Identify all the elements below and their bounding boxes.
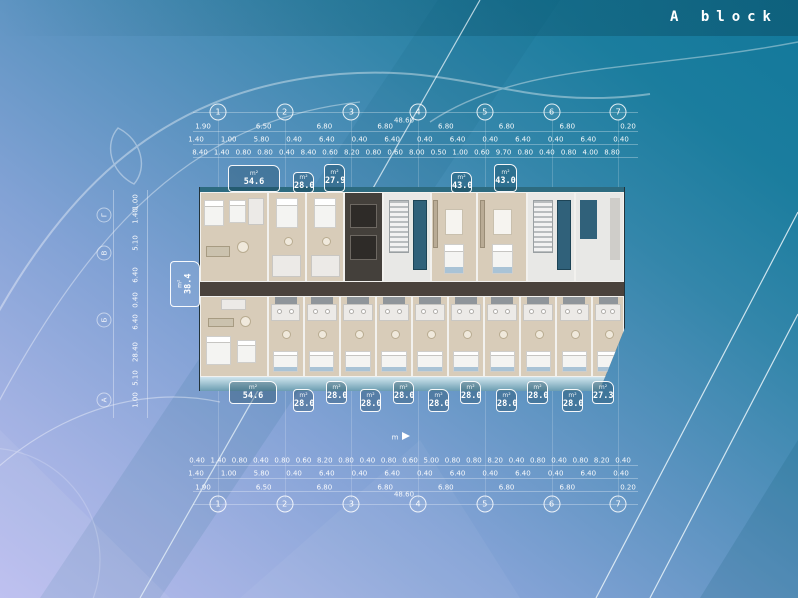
dimension-value: 0.80 xyxy=(573,458,589,465)
fixture-wc xyxy=(505,309,510,314)
dimension-value: 1.90 xyxy=(195,485,211,492)
area-unit-label: m² xyxy=(495,170,516,176)
dimension-chain-line xyxy=(193,157,638,158)
dimension-value: 6.40 xyxy=(515,471,531,478)
area-unit-label: m² xyxy=(394,385,413,391)
dimension-chain-line xyxy=(193,465,638,466)
bed-throw xyxy=(346,367,369,371)
furniture-table xyxy=(605,330,614,339)
area-badge[interactable]: m²43.0 xyxy=(494,164,517,192)
dimension-value: 6.40 xyxy=(581,471,597,478)
area-value: 28.0 xyxy=(327,392,346,401)
area-unit-label: m² xyxy=(177,280,183,288)
grid-row-letter: В xyxy=(97,246,112,261)
furniture-table xyxy=(427,330,436,339)
bed-pillow xyxy=(454,352,477,356)
dimension-value: 1.00 xyxy=(221,137,237,144)
dimension-value: 8.80 xyxy=(604,150,620,157)
bed-pillow xyxy=(563,352,586,356)
area-badge[interactable]: m²28.0 xyxy=(360,389,381,412)
dimension-value: 6.80 xyxy=(499,124,515,131)
dimension-value: 0.40 xyxy=(417,137,433,144)
dimension-value: 0.80 xyxy=(381,458,397,465)
dimension-value: 0.40 xyxy=(548,137,564,144)
left-dimension-value: 1.00 xyxy=(133,392,140,408)
furniture-bed xyxy=(276,198,298,228)
furniture-bed xyxy=(444,244,464,274)
dimension-value: 1.40 xyxy=(188,471,204,478)
furniture-table xyxy=(282,330,291,339)
area-value: 28.0 xyxy=(294,400,313,409)
fixture-wc xyxy=(433,309,438,314)
fixture-sink xyxy=(421,309,426,314)
furniture-bed xyxy=(453,351,478,372)
dimension-value: 0.40 xyxy=(615,458,631,465)
dimension-value: 0.40 xyxy=(613,137,629,144)
furniture-bed xyxy=(314,198,336,228)
furniture-sofa xyxy=(206,246,230,257)
bed-throw xyxy=(563,367,586,371)
unit-bottom-studio[interactable] xyxy=(484,296,520,377)
furniture-dining-table xyxy=(493,209,512,235)
left-dimension-value: 5.10 xyxy=(133,370,140,386)
furniture-table xyxy=(355,330,364,339)
dimension-value: 0.80 xyxy=(236,150,252,157)
area-unit-label: m² xyxy=(294,393,313,399)
area-value: 54.6 xyxy=(230,392,276,401)
dimension-value: 0.60 xyxy=(474,150,490,157)
dimension-value: 6.80 xyxy=(377,485,393,492)
corner-band xyxy=(700,440,798,598)
bed-pillow xyxy=(277,199,297,206)
area-value: 28.0 xyxy=(429,400,448,409)
furniture-entry xyxy=(491,297,513,304)
furniture-entry xyxy=(455,297,477,304)
unit-bottom-studio[interactable] xyxy=(340,296,376,377)
fixture-sink xyxy=(565,309,570,314)
grid-column-circle-top: 7 xyxy=(610,104,627,121)
furniture-shaft xyxy=(557,200,571,270)
dimension-value: 8.20 xyxy=(487,458,503,465)
furniture-bed xyxy=(492,244,513,274)
furniture-entry xyxy=(347,297,369,304)
dimension-value: 0.40 xyxy=(417,471,433,478)
furniture-table xyxy=(237,241,249,253)
unit-bottom-studio[interactable] xyxy=(304,296,340,377)
dimension-value: 5.80 xyxy=(254,137,270,144)
furniture-table xyxy=(284,237,293,246)
furniture-table xyxy=(535,330,544,339)
dimension-value: 1.90 xyxy=(195,124,211,131)
furniture-entry xyxy=(599,297,618,304)
dimension-value: 0.60 xyxy=(387,150,403,157)
unit-bottom-apartment-large-2[interactable] xyxy=(200,296,268,377)
fixture-wc xyxy=(397,309,402,314)
furniture-bathroom xyxy=(560,304,589,321)
furniture-wardrobe xyxy=(480,200,485,248)
grid-column-circle-bottom: 3 xyxy=(343,496,360,513)
dimension-value: 0.80 xyxy=(366,150,382,157)
bed-pillow xyxy=(315,199,335,206)
dimension-value: 6.40 xyxy=(384,471,400,478)
fixture-wc xyxy=(469,309,474,314)
bed-throw xyxy=(454,367,477,371)
unit-bottom-studio[interactable] xyxy=(520,296,556,377)
bed-pillow xyxy=(274,352,297,356)
bed-throw xyxy=(418,367,441,371)
area-value: 54.6 xyxy=(229,178,279,187)
furniture-elevator xyxy=(350,204,377,229)
area-unit-label: m² xyxy=(528,385,547,391)
grid-column-circle-top: 1 xyxy=(210,104,227,121)
dimension-value: 6.40 xyxy=(319,471,335,478)
unit-bottom-studio[interactable] xyxy=(556,296,592,377)
dimension-value: 0.80 xyxy=(232,458,248,465)
area-badge[interactable]: m²27.3 xyxy=(592,381,614,404)
area-unit-label: m² xyxy=(361,393,380,399)
bed-throw xyxy=(491,367,514,371)
furniture-entry xyxy=(383,297,405,304)
dimension-value: 6.50 xyxy=(256,124,272,131)
furniture-stair-flight xyxy=(533,200,553,253)
dimension-chain-line xyxy=(193,131,638,132)
overall-width-value: 48.60 xyxy=(394,118,414,125)
grid-column-circle-top: 6 xyxy=(543,104,560,121)
side-area-inner: m²38.4 xyxy=(177,274,193,294)
area-value: 43.0 xyxy=(452,182,471,191)
fixture-sink xyxy=(529,309,534,314)
bed-throw xyxy=(310,367,333,371)
fixture-wc xyxy=(361,309,366,314)
dimension-value: 6.80 xyxy=(377,124,393,131)
furniture-table xyxy=(240,316,251,327)
area-value: 28.0 xyxy=(563,400,582,409)
furniture-wall xyxy=(610,198,620,259)
area-value: 28.0 xyxy=(461,392,480,401)
bed-pillow xyxy=(445,245,463,252)
area-badge[interactable]: m²28.0 xyxy=(393,381,414,404)
block-title: A block xyxy=(670,9,778,25)
fixture-sink xyxy=(457,309,462,314)
dimension-value: 0.40 xyxy=(286,137,302,144)
dimension-value: 6.80 xyxy=(559,485,575,492)
area-badge[interactable]: m²28.0 xyxy=(293,172,314,193)
furniture-table xyxy=(499,330,508,339)
area-badge[interactable]: m²28.0 xyxy=(496,389,517,412)
area-badge[interactable]: m²28.0 xyxy=(293,389,314,412)
furniture-bathroom xyxy=(343,304,372,321)
left-dimension-value: 6.40 xyxy=(133,314,140,330)
dimension-value: 6.40 xyxy=(384,137,400,144)
bed-pillow xyxy=(382,352,405,356)
furniture-table xyxy=(322,237,331,246)
furniture-stair-flight xyxy=(389,200,409,253)
furniture-elevator xyxy=(350,235,377,260)
fixture-wc xyxy=(325,309,330,314)
unit-top-apartment-suite[interactable] xyxy=(477,192,527,282)
furniture-bed xyxy=(309,351,334,372)
dimension-value: 0.80 xyxy=(338,458,354,465)
plan-corridor xyxy=(200,282,624,296)
furniture-entry xyxy=(275,297,297,304)
dimension-chain-line xyxy=(193,144,638,145)
furniture-bathroom xyxy=(307,304,336,321)
fixture-sink xyxy=(313,309,318,314)
area-badge[interactable]: m²28.0 xyxy=(527,381,548,404)
area-value: 28.0 xyxy=(528,392,547,401)
area-unit-label: m² xyxy=(229,171,279,177)
furniture-table xyxy=(463,330,472,339)
unit-top-stairwell[interactable] xyxy=(383,192,430,282)
area-value: 27.9 xyxy=(325,177,344,186)
area-value: 28.0 xyxy=(361,400,380,409)
dimension-value: 6.40 xyxy=(515,137,531,144)
furniture-bed xyxy=(206,336,231,364)
area-unit-label: m² xyxy=(563,393,582,399)
overall-width-value: 48.60 xyxy=(394,492,414,499)
area-value: 28.0 xyxy=(294,182,313,191)
bed-pillow xyxy=(346,352,369,356)
bed-pillow xyxy=(527,352,550,356)
dimension-value: 0.20 xyxy=(620,124,636,131)
dimension-value: 8.40 xyxy=(192,150,208,157)
furniture-wardrobe xyxy=(433,200,437,248)
area-value: 28.0 xyxy=(497,400,516,409)
furniture-bed xyxy=(490,351,515,372)
furniture-table xyxy=(391,330,400,339)
left-dimension-value: 0.40 xyxy=(133,292,140,308)
dimension-value: 6.50 xyxy=(256,485,272,492)
dimension-value: 0.80 xyxy=(257,150,273,157)
dimension-value: 9.70 xyxy=(496,150,512,157)
unit-bottom-studio[interactable] xyxy=(268,296,304,377)
furniture-bathroom xyxy=(248,198,264,224)
furniture-bed xyxy=(562,351,587,372)
dimension-chain-line xyxy=(193,478,638,479)
dimension-value: 0.60 xyxy=(402,458,418,465)
furniture-bathroom xyxy=(311,255,340,278)
dimension-value: 5.00 xyxy=(424,458,440,465)
plan-top-band xyxy=(200,192,624,282)
furniture-bathroom xyxy=(379,304,408,321)
bed-throw xyxy=(527,367,550,371)
fixture-sink xyxy=(277,309,282,314)
area-badge[interactable]: m²28.0 xyxy=(460,381,481,404)
floorplan-render[interactable] xyxy=(199,187,625,391)
unit-bottom-studio[interactable] xyxy=(448,296,484,377)
bed-pillow xyxy=(310,352,333,356)
dimension-value: 0.50 xyxy=(431,150,447,157)
grid-column-circle-bottom: 7 xyxy=(610,496,627,513)
left-dimension-value: 6.40 xyxy=(133,267,140,283)
dimension-value: 8.40 xyxy=(301,150,317,157)
dimension-value: 0.40 xyxy=(279,150,295,157)
furniture-entry xyxy=(527,297,549,304)
dimension-value: 8.20 xyxy=(317,458,333,465)
bed-throw xyxy=(274,367,297,371)
unit-top-apartment-small[interactable] xyxy=(268,192,306,282)
area-badge[interactable]: m²54.6 xyxy=(229,381,277,404)
area-badge[interactable]: m²28.0 xyxy=(428,389,449,412)
area-unit-label: m² xyxy=(294,175,313,181)
unit-top-service-core[interactable] xyxy=(344,192,383,282)
area-badge[interactable]: m²28.0 xyxy=(326,381,347,404)
dimension-value: 0.80 xyxy=(274,458,290,465)
dimension-value: 0.40 xyxy=(352,471,368,478)
bed-pillow xyxy=(207,337,230,343)
left-dimension-line xyxy=(147,190,148,418)
dimension-value: 1.00 xyxy=(221,471,237,478)
dimension-value: 0.40 xyxy=(286,471,302,478)
furniture-entry xyxy=(311,297,333,304)
dimension-value: 1.40 xyxy=(188,137,204,144)
furniture-bed xyxy=(229,200,246,223)
bed-pillow xyxy=(493,245,512,252)
furniture-bed xyxy=(345,351,370,372)
furniture-entry xyxy=(419,297,441,304)
dimension-value: 6.80 xyxy=(438,485,454,492)
dimension-value: 6.80 xyxy=(317,485,333,492)
area-badge[interactable]: m²54.6 xyxy=(228,165,280,192)
furniture-table xyxy=(571,330,580,339)
north-marker-label: m xyxy=(392,435,399,442)
dimension-value: 6.40 xyxy=(450,137,466,144)
fixture-sink xyxy=(349,309,354,314)
area-value: 38.4 xyxy=(184,274,193,294)
area-unit-label: m² xyxy=(461,385,480,391)
bed-pillow xyxy=(491,352,514,356)
area-unit-label: m² xyxy=(452,175,471,181)
furniture-dining-table xyxy=(445,209,463,235)
unit-top-apartment-small[interactable] xyxy=(306,192,344,282)
bed-pillow xyxy=(418,352,441,356)
dimension-value: 6.40 xyxy=(450,471,466,478)
dimension-value: 0.60 xyxy=(322,150,338,157)
furniture-shaft xyxy=(580,200,597,239)
dimension-value: 1.00 xyxy=(452,150,468,157)
plan-bottom-band xyxy=(200,296,624,377)
dimension-value: 0.40 xyxy=(482,471,498,478)
dimension-value: 4.00 xyxy=(583,150,599,157)
dimension-value: 0.80 xyxy=(445,458,461,465)
furniture-bathroom xyxy=(523,304,552,321)
grid-column-circle-bottom: 5 xyxy=(476,496,493,513)
dimension-value: 0.40 xyxy=(360,458,376,465)
fixture-wc xyxy=(289,309,294,314)
dimension-value: 0.40 xyxy=(352,137,368,144)
unit-bottom-studio[interactable] xyxy=(376,296,412,377)
dimension-value: 0.40 xyxy=(548,471,564,478)
unit-top-apartment-suite[interactable] xyxy=(431,192,478,282)
area-badge[interactable]: m²27.9 xyxy=(324,164,345,192)
dimension-value: 1.40 xyxy=(211,458,227,465)
grid-column-circle-top: 5 xyxy=(476,104,493,121)
dimension-value: 0.40 xyxy=(613,471,629,478)
dimension-value: 6.80 xyxy=(559,124,575,131)
grid-column-circle-bottom: 2 xyxy=(276,496,293,513)
dimension-value: 0.40 xyxy=(189,458,205,465)
dimension-value: 0.80 xyxy=(466,458,482,465)
dimension-value: 6.80 xyxy=(499,485,515,492)
bed-pillow xyxy=(230,201,245,206)
grid-column-circle-bottom: 1 xyxy=(210,496,227,513)
area-unit-label: m² xyxy=(327,385,346,391)
left-dimension-value: 1.40 xyxy=(133,208,140,224)
dimension-value: 0.40 xyxy=(539,150,555,157)
area-unit-label: m² xyxy=(230,385,276,391)
fixture-wc xyxy=(541,309,546,314)
dimension-value: 0.60 xyxy=(296,458,312,465)
area-value: 43.0 xyxy=(495,177,516,186)
dimension-value: 8.00 xyxy=(409,150,425,157)
grid-column-circle-bottom: 6 xyxy=(543,496,560,513)
dimension-value: 1.40 xyxy=(214,150,230,157)
dimension-value: 0.80 xyxy=(517,150,533,157)
furniture-bathroom xyxy=(415,304,444,321)
unit-top-stairwell[interactable] xyxy=(527,192,574,282)
furniture-bed xyxy=(237,340,257,364)
dimension-value: 8.20 xyxy=(594,458,610,465)
unit-bottom-studio[interactable] xyxy=(412,296,448,377)
grid-row-letter: Г xyxy=(97,208,112,223)
area-badge[interactable]: m²28.0 xyxy=(562,389,583,412)
dimension-value: 0.80 xyxy=(530,458,546,465)
furniture-bed xyxy=(273,351,298,372)
left-dimension-value: 28.40 xyxy=(133,342,140,362)
area-badge[interactable]: m²43.0 xyxy=(451,172,472,193)
dimension-value: 0.80 xyxy=(561,150,577,157)
left-dimension-value: 5.10 xyxy=(133,235,140,251)
fixture-sink xyxy=(385,309,390,314)
area-value: 27.3 xyxy=(593,392,613,401)
fixture-sink xyxy=(601,309,606,314)
bed-throw xyxy=(493,267,512,273)
bed-pillow xyxy=(238,341,256,346)
area-unit-label: m² xyxy=(497,393,516,399)
area-unit-label: m² xyxy=(593,385,613,391)
area-value: 28.0 xyxy=(394,392,413,401)
grid-column-circle-top: 3 xyxy=(343,104,360,121)
area-unit-label: m² xyxy=(429,393,448,399)
dimension-value: 0.40 xyxy=(482,137,498,144)
furniture-bathroom xyxy=(451,304,480,321)
furniture-bed xyxy=(526,351,551,372)
bed-throw xyxy=(382,367,405,371)
dimension-value: 0.40 xyxy=(551,458,567,465)
fixture-sink xyxy=(493,309,498,314)
furniture-shaft xyxy=(413,200,427,270)
furniture-bathroom xyxy=(271,304,300,321)
furniture-bathroom xyxy=(595,304,621,321)
furniture-entry xyxy=(563,297,585,304)
furniture-sofa xyxy=(208,318,234,327)
grid-row-letter: А xyxy=(97,393,112,408)
left-dimension-line xyxy=(113,190,114,418)
dimension-value: 5.80 xyxy=(254,471,270,478)
unit-top-lobby[interactable] xyxy=(575,192,624,282)
unit-top-apartment-large[interactable] xyxy=(200,192,268,282)
dimension-value: 0.40 xyxy=(509,458,525,465)
bed-pillow xyxy=(205,201,223,207)
fixture-wc xyxy=(577,309,582,314)
furniture-bathroom xyxy=(221,299,246,311)
furniture-bed xyxy=(381,351,406,372)
furniture-bed xyxy=(204,200,224,226)
furniture-table xyxy=(318,330,327,339)
furniture-bathroom xyxy=(487,304,516,321)
side-area-badge[interactable]: m²38.4 xyxy=(170,261,200,307)
grid-column-circle-top: 2 xyxy=(276,104,293,121)
